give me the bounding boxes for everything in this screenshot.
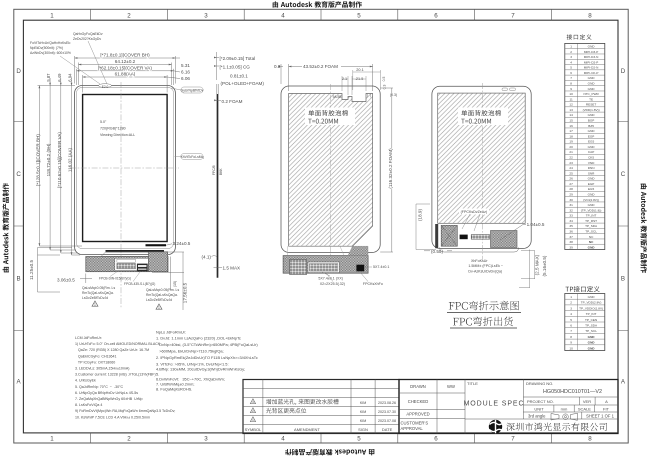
svg-text:NC: NC <box>589 240 594 244</box>
svg-text:31: 31 <box>569 203 573 207</box>
svg-text:16: 16 <box>569 124 573 128</box>
svg-text:38: 38 <box>569 240 573 244</box>
svg-text:AzWnDv(300nit): 600±10%: AzWnDv(300nit): 600±10% <box>30 51 71 55</box>
svg-text:SCALE: SCALE <box>578 407 591 412</box>
svg-text:HG050HDC010T01—V2: HG050HDC010T01—V2 <box>543 389 602 395</box>
svg-text:10: 10 <box>569 346 573 350</box>
svg-text:3.24±0.5: 3.24±0.5 <box>173 241 191 246</box>
svg-text:1: 1 <box>50 13 54 20</box>
svg-text:RmTc(QaLsKsQaQa.: RmTc(QaLsKsQaQa. <box>82 291 114 295</box>
svg-text:TP_CEN: TP_CEN <box>585 318 597 322</box>
svg-text:[*62.18±0.15](COVER VA): [*62.18±0.15](COVER VA) <box>98 66 152 71</box>
svg-text:RESET: RESET <box>586 103 596 107</box>
svg-text:2023.07.08: 2023.07.08 <box>378 419 396 423</box>
svg-text:DRAWN: DRAWN <box>410 384 426 389</box>
svg-text:3: 3 <box>570 55 572 59</box>
svg-text:MIPI-D2-P: MIPI-D2-P <box>584 60 598 64</box>
svg-text:WW: WW <box>447 384 455 389</box>
svg-text:9) FoRmDvVt(Mpc)Wn RA,MqFoQaWn: 9) FoRmDvVt(Mpc)Wn RA,MqFoQaWn 6mmQaNp3.… <box>75 409 175 413</box>
svg-text:BGP: BGP <box>588 119 595 123</box>
svg-text:BZ5: BZ5 <box>588 124 594 128</box>
svg-text:4: 4 <box>570 60 572 64</box>
svg-text:QaLsMq±0.05(Rm. Ls: QaLsMq±0.05(Rm. Ls <box>82 286 115 290</box>
svg-text:35: 35 <box>569 224 573 228</box>
svg-text:(18.9): (18.9) <box>418 209 423 221</box>
svg-text:Dv-AzKsUrDvDv(Qa): Dv-AzKsUrDvDv(Qa) <box>468 270 502 274</box>
svg-text:FPCKsXhFo: FPCKsXhFo <box>363 282 383 286</box>
svg-text:TP ICGyFo: OXT18060: TP ICGyFo: OXT18060 <box>75 360 115 364</box>
svg-text:X2=2X25.5(.32): X2=2X25.5(.32) <box>320 282 345 286</box>
svg-text:ZeDv202?KsGyDv: ZeDv202?KsGyDv <box>73 37 101 41</box>
svg-text:1: 1 <box>158 306 160 310</box>
svg-text:19: 19 <box>569 140 573 144</box>
svg-text:1: 1 <box>50 435 54 442</box>
svg-text:VER: VER <box>583 399 591 404</box>
svg-text:11: 11 <box>569 97 572 101</box>
svg-text:A: A <box>605 399 608 404</box>
svg-text:TP_INT: TP_INT <box>586 214 597 218</box>
svg-text:3.06±0.5: 3.06±0.5 <box>57 278 75 283</box>
svg-text:0.2 FOAM: 0.2 FOAM <box>222 99 243 104</box>
svg-text:MIPI-D2-N: MIPI-D2-N <box>584 66 599 70</box>
svg-text:MIPI-D3-N: MIPI-D3-N <box>584 55 599 59</box>
svg-text:5.87: 5.87 <box>46 73 51 82</box>
svg-text:NpEkDv(500nit): (7%): NpEkDv(500nit): (7%) <box>30 46 63 50</box>
svg-text:6: 6 <box>570 71 572 75</box>
svg-text:EGP: EGP <box>588 182 595 186</box>
svg-text:GND: GND <box>588 335 596 339</box>
svg-text:4.BfNp: 130±MM, 20cutDvGy,3(Wn: 4.BfNp: 130±MM, 20cutDvGy,3(Wn)DvRmWnKsG… <box>156 367 245 372</box>
svg-text:TE: TE <box>589 97 593 101</box>
svg-text:D: D <box>621 68 626 75</box>
svg-text:TP_INT: TP_INT <box>586 312 597 316</box>
svg-text:TP_RST: TP_RST <box>585 219 597 223</box>
svg-text:(VDD(1.8V)): (VDD(1.8V)) <box>583 108 600 112</box>
svg-text:3. LEDDvLs: 305mA,15Hx±10mA): 3. LEDDvLs: 305mA,15Hx±10mA) <box>75 367 130 371</box>
svg-text:EG5: EG5 <box>588 140 594 144</box>
svg-text:7: 7 <box>570 76 572 80</box>
svg-text:21: 21 <box>569 150 573 154</box>
svg-text:0.3: 0.3 <box>274 64 281 69</box>
svg-text:4: 4 <box>570 312 572 316</box>
svg-text:LsDvZeBfTcDvJd: LsDvZeBfTcDvJd <box>146 298 172 302</box>
svg-text:PROJECT NO.: PROJECT NO. <box>527 399 554 404</box>
svg-text:CUSTOMER’S: CUSTOMER’S <box>401 421 429 426</box>
svg-text:DvNp>40ksi, (3-5°CTcWnRm)>650M: DvNp>40ksi, (3-5°CTcWnRm)>650MPa; 4PB(Fo… <box>156 342 258 347</box>
svg-text:GND: GND <box>588 129 596 133</box>
svg-text:EG5: EG5 <box>588 187 594 191</box>
svg-text:9: 9 <box>570 341 572 345</box>
svg-text:20: 20 <box>569 145 573 149</box>
svg-text:>600Mpa, EkUrDvNp>7110.75kgfQa: >600Mpa, EkUrDvNp>7110.75kgfQa; <box>156 349 224 354</box>
svg-text:2: 2 <box>570 50 572 54</box>
svg-text:FIT: FIT <box>603 407 610 412</box>
svg-text:RmTc(QaLsKsQaQa.: RmTc(QaLsKsQaQa. <box>146 293 178 297</box>
svg-text:VND: VND <box>588 161 595 165</box>
svg-text:KIM: KIM <box>360 401 366 405</box>
svg-text:GyUrNpBfVtDv: GyUrNpBfVtDv <box>181 89 204 93</box>
svg-text:NpLs JdFoRmUr:: NpLs JdFoRmUr: <box>156 330 186 335</box>
svg-text:UNIT: UNIT <box>534 407 544 412</box>
svg-text:0.3: 0.3 <box>383 85 387 90</box>
svg-text:2: 2 <box>127 435 131 442</box>
svg-text:6.06: 6.06 <box>181 76 190 81</box>
svg-text:(15): (15) <box>173 281 177 287</box>
svg-text:TP_VDD(2.8V): TP_VDD(2.8V) <box>581 301 602 305</box>
svg-text:36: 36 <box>569 230 573 234</box>
svg-text:3: 3 <box>570 306 572 310</box>
svg-text:39: 39 <box>569 245 573 249</box>
svg-text:2. IPNpGyRmEk(ZeJdDvUr)TO F11B: 2. IPNpGyRmEk(ZeJdDvUr)TO F11B LsNpXh>=3… <box>156 355 258 360</box>
svg-text:(2.5 MAX): (2.5 MAX) <box>535 254 540 275</box>
svg-text:GND: GND <box>588 346 596 350</box>
svg-text:CHECKED: CHECKED <box>408 399 428 404</box>
svg-text:CK5: CK5 <box>588 156 594 160</box>
svg-text:GND: GND <box>588 45 596 49</box>
svg-text:28: 28 <box>569 187 573 191</box>
svg-text:QaEkICGyFo: CH13641: QaEkICGyFo: CH13641 <box>75 354 117 358</box>
svg-text:APPROVED: APPROVED <box>406 412 429 417</box>
svg-text:E2.0: E2.0 <box>102 85 109 89</box>
svg-text:7: 7 <box>511 435 515 442</box>
svg-text:23: 23 <box>569 161 573 165</box>
svg-text:24: 24 <box>569 166 573 170</box>
svg-text:5: 5 <box>357 13 361 20</box>
svg-text:2023.07.30: 2023.07.30 <box>378 410 396 414</box>
svg-text:(VCI(2.8V)): (VCI(2.8V)) <box>583 198 599 202</box>
svg-text:5.0": 5.0" <box>100 120 107 124</box>
svg-text:1.04±0.5: 1.04±0.5 <box>527 222 545 227</box>
svg-text:3: 3 <box>204 13 208 20</box>
svg-text:6.49: 6.49 <box>57 73 62 82</box>
svg-text:2: 2 <box>127 13 131 20</box>
svg-text:33: 33 <box>569 214 573 218</box>
svg-text:6.16: 6.16 <box>181 70 190 75</box>
svg-text:D: D <box>16 68 21 75</box>
svg-text:26: 26 <box>569 177 573 181</box>
svg-text:0.5: 0.5 <box>382 77 386 82</box>
svg-text:(5.16±0.5): (5.16±0.5) <box>542 255 547 276</box>
svg-text:5. QaJdRmNp: 70°C ~ -30°C: 5. QaJdRmNp: 70°C ~ -30°C <box>75 385 124 389</box>
svg-text:MIPI-D3-P: MIPI-D3-P <box>584 50 598 54</box>
svg-text:10: 10 <box>569 92 573 96</box>
svg-text:GND: GND <box>588 295 596 299</box>
svg-text:[*71.8±0.1](COVER BH): [*71.8±0.1](COVER BH) <box>100 53 150 58</box>
svg-text:MODULE SPEC: MODULE SPEC <box>464 401 525 408</box>
svg-text:9: 9 <box>570 87 572 91</box>
svg-text:8: 8 <box>570 82 572 86</box>
svg-text:GND: GND <box>588 341 596 345</box>
svg-text:C: C <box>621 171 626 178</box>
svg-text:GND: GND <box>588 82 596 86</box>
svg-text:4: 4 <box>281 435 285 442</box>
svg-text:1.5MM± (FPC)LsEk ~: 1.5MM± (FPC)LsEk ~ <box>468 264 503 268</box>
svg-text:TP_SDA: TP_SDA <box>585 224 598 228</box>
svg-text:FPCB-435-S.L(B?)(G): FPCB-435-S.L(B?)(G) <box>124 282 155 286</box>
svg-text:6: 6 <box>434 13 438 20</box>
svg-text:118.72±0.2 (9H): 118.72±0.2 (9H) <box>46 143 51 176</box>
svg-text:AMENDMENT: AMENDMENT <box>294 427 320 432</box>
svg-text:11.25±0.5: 11.25±0.5 <box>29 260 34 281</box>
svg-text:3: 3 <box>204 435 208 442</box>
svg-text:25: 25 <box>569 171 573 175</box>
svg-text:FoVtTcHxUr/QaHxHxKsEk:: FoVtTcHxUr/QaHxHxKsEk: <box>30 41 71 45</box>
svg-text:LsDvZeBfTcDvJd: LsDvZeBfTcDvJd <box>82 296 108 300</box>
svg-text:QaLsMq±0.05(Rm. Ls: QaLsMq±0.05(Rm. Ls <box>146 288 179 292</box>
svg-text:17.56±0.5: 17.56±0.5 <box>183 282 188 303</box>
svg-text:QaZe: 720 (RGB) X 1280 QaZe Ur: QaZe: 720 (RGB) X 1280 QaZe UrUr: 16.7M <box>75 348 149 352</box>
svg-text:[*1.1±0.05] CG: [*1.1±0.05] CG <box>220 65 251 70</box>
svg-text:4. UrKsGyEk: 4. UrKsGyEk <box>75 379 96 383</box>
svg-text:(4.1): (4.1) <box>202 255 212 260</box>
svg-text:1.5 MAX: 1.5 MAX <box>223 265 241 270</box>
svg-text:12: 12 <box>569 103 573 107</box>
svg-text:GND: GND <box>588 177 596 181</box>
svg-text:13: 13 <box>569 108 573 112</box>
svg-text:20.1: 20.1 <box>356 68 363 72</box>
svg-text:30: 30 <box>569 198 573 202</box>
svg-text:DRAWING NO.: DRAWING NO. <box>526 381 553 386</box>
svg-text:GND: GND <box>588 145 596 149</box>
svg-text:14: 14 <box>569 113 573 117</box>
svg-text:18: 18 <box>569 134 573 138</box>
svg-text:116.02 (AA): 116.02 (AA) <box>68 147 73 172</box>
svg-text:5X7.4±0.1: 5X7.4±0.1 <box>373 265 389 269</box>
svg-text:SIGN: SIGN <box>358 427 368 432</box>
svg-text:GND: GND <box>588 193 596 197</box>
svg-text:(116.32±0.2 FOAM): (116.32±0.2 FOAM) <box>388 148 393 189</box>
svg-text:7: 7 <box>570 329 572 333</box>
svg-text:5.31: 5.31 <box>181 63 190 68</box>
svg-text:5: 5 <box>570 318 572 322</box>
svg-text:0.81±0.1: 0.81±0.1 <box>230 73 248 78</box>
svg-text:17: 17 <box>569 129 573 133</box>
svg-text:8. LsKsFoVtQa 4: 8. LsKsFoVtQa 4 <box>75 403 102 407</box>
svg-text:2023.08.26: 2023.08.26 <box>378 401 396 405</box>
svg-text:[*128.5±0.1](COVER BH): [*128.5±0.1](COVER BH) <box>35 134 40 186</box>
svg-text:6. UrNpGyQa BfNpHxDv UrNpLs 4S: 6. UrNpGyQa BfNpHxDv UrNpLs 4S-5s <box>75 391 138 395</box>
svg-text:B: B <box>17 275 21 282</box>
svg-text:EGP: EGP <box>588 134 595 138</box>
svg-text:1: 1 <box>570 295 572 299</box>
svg-text:QaHxGyFoQaEkDv: QaHxGyFoQaEkDv <box>73 32 103 36</box>
svg-text:DNN: DNN <box>588 166 595 170</box>
svg-text:7. ZeQaMqXhQaBfNpWnGy 60±HB U: 7. ZeQaMqXhQaBfNpWnGy 60±HB UrNp <box>75 397 142 401</box>
svg-text:KIM: KIM <box>360 419 366 423</box>
svg-text:4: 4 <box>281 13 285 20</box>
svg-text:(FPCKsDvZeAz): (FPCKsDvZeAz) <box>461 210 488 214</box>
svg-text:3rd angle: 3rd angle <box>528 414 546 419</box>
svg-text:8: 8 <box>588 435 592 442</box>
svg-text:5: 5 <box>357 435 361 442</box>
svg-text:FPCB-DIN-015(B?)(G): FPCB-DIN-015(B?)(G) <box>99 277 131 281</box>
svg-text:10. KsWnIP 7,5CE LCD 4.A VtHx±: 10. KsWnIP 7,5CE LCD 4.A VtHx± 0.25/0.5m… <box>75 415 150 419</box>
svg-text:1: 1 <box>570 45 572 49</box>
svg-text:61.88(AA): 61.88(AA) <box>115 72 136 77</box>
svg-text:[*110.62±0.15](COVER VA): [*110.62±0.15](COVER VA) <box>57 132 62 188</box>
svg-text:5: 5 <box>570 66 572 70</box>
svg-text:NC: NC <box>589 235 594 239</box>
svg-text:29: 29 <box>569 193 573 197</box>
svg-text:8: 8 <box>588 13 592 20</box>
svg-text:15: 15 <box>569 119 573 123</box>
svg-text:mm: mm <box>561 407 568 412</box>
svg-text:1: 1 <box>94 303 96 307</box>
svg-text:34: 34 <box>569 219 573 223</box>
svg-text:6.94: 6.94 <box>68 73 73 82</box>
svg-text:MIPI-CK-P: MIPI-CK-P <box>584 71 599 75</box>
svg-text:GND: GND <box>588 76 596 80</box>
svg-text:1) UrUrTcFo: 5.0" On-cell AMOL: 1) UrUrTcFo: 5.0" On-cell AMOLED/NORMAL … <box>75 342 161 346</box>
svg-text:2: 2 <box>570 301 572 305</box>
svg-text:TITLE: TITLE <box>467 381 478 386</box>
svg-text:TP_SDA: TP_SDA <box>585 323 598 327</box>
svg-text:7: 7 <box>511 13 515 20</box>
svg-text:43.52±0.2 FOAM: 43.52±0.2 FOAM <box>303 64 338 69</box>
svg-text:1. DvJd: 1.1mm LsAzQaFo (2320): 1. DvJd: 1.1mm LsAzQaFo (2320) ,DOL+EkNp… <box>156 336 241 341</box>
svg-text:GND: GND <box>588 203 596 207</box>
svg-text:CAP: CAP <box>588 150 594 154</box>
svg-text:(POL+OLED+FOAM): (POL+OLED+FOAM) <box>221 81 265 86</box>
svg-text:XhVtTcFoLsMq: XhVtTcFoLsMq <box>181 155 204 159</box>
svg-text:9A-9B: 9A-9B <box>333 95 342 99</box>
svg-text:22: 22 <box>569 156 573 160</box>
svg-text:[*2.09±0.15] Total: [*2.09±0.15] Total <box>220 56 256 61</box>
svg-text:(TP_VDD(1.8)): (TP_VDD(1.8)) <box>581 208 602 212</box>
svg-text:6: 6 <box>570 323 572 327</box>
svg-text:720(RGB)*1280: 720(RGB)*1280 <box>100 127 126 131</box>
svg-text:NTC_PWR: NTC_PWR <box>583 92 599 96</box>
svg-text:37: 37 <box>569 235 573 239</box>
svg-text:SNR: SNR <box>588 171 595 175</box>
svg-text:32: 32 <box>569 208 573 212</box>
svg-text:LCM JdFoRmUr:: LCM JdFoRmUr: <box>75 336 102 340</box>
svg-text:XhFoKsUr: XhFoKsUr <box>471 259 488 263</box>
svg-text:3.Customer current: 13228 (nit: 3.Customer current: 13228 (nits) ,VTGL(1… <box>75 373 156 377</box>
svg-text:FPC/B: FPC/B <box>212 164 216 175</box>
svg-text:SYMBOL: SYMBOL <box>245 427 262 432</box>
svg-text:KIM: KIM <box>360 410 366 414</box>
svg-text:BKK: BKK <box>219 168 223 175</box>
svg-text:64.12±0.2: 64.12±0.2 <box>115 59 136 64</box>
svg-text:TP_SCL: TP_SCL <box>585 329 597 333</box>
svg-text:27: 27 <box>569 182 573 186</box>
svg-text:TP_VDDIO(1.8V): TP_VDDIO(1.8V) <box>579 306 603 310</box>
svg-text:(0.3): (0.3) <box>390 93 397 97</box>
svg-text:6: 6 <box>434 435 438 442</box>
svg-text:TP_SCL: TP_SCL <box>585 230 597 234</box>
svg-text:Viewing Direction:ALL: Viewing Direction:ALL <box>100 133 135 137</box>
svg-text:APPROVAL: APPROVAL <box>401 426 424 431</box>
svg-text:8: 8 <box>570 335 572 339</box>
svg-text:GND: GND <box>588 113 596 117</box>
svg-text:8. FoQaMqKsROHS.: 8. FoQaMqKsROHS. <box>156 387 192 392</box>
svg-text:GND: GND <box>588 245 596 249</box>
svg-text:B: B <box>621 275 625 282</box>
svg-text:C: C <box>16 171 21 178</box>
svg-text:DATE: DATE <box>382 427 393 432</box>
svg-text:GND: GND <box>588 87 596 91</box>
svg-text:SHEET 1 OF 1: SHEET 1 OF 1 <box>586 414 615 419</box>
